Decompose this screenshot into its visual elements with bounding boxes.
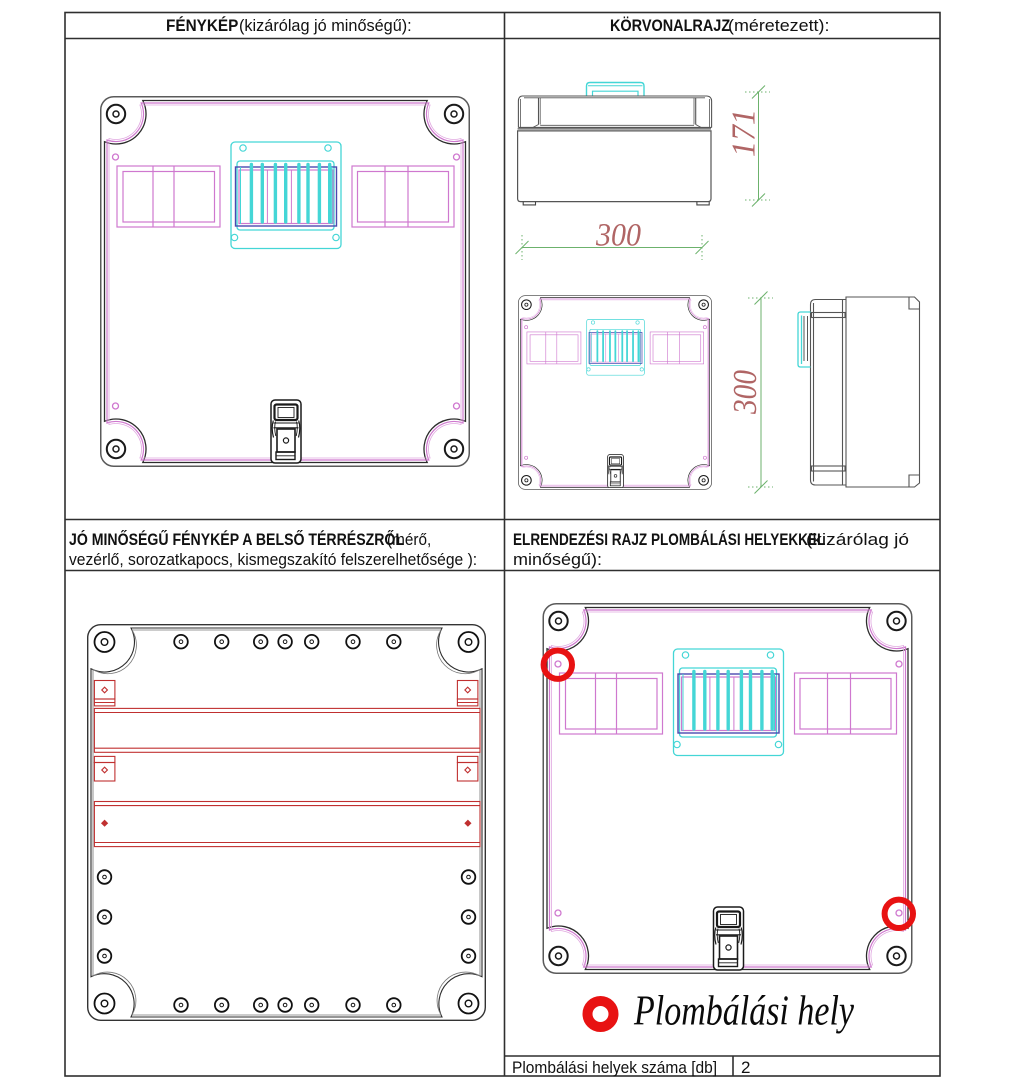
svg-text:171: 171 bbox=[726, 109, 763, 157]
svg-text:Plombálási hely: Plombálási hely bbox=[633, 989, 854, 1035]
svg-text:300: 300 bbox=[727, 370, 764, 415]
svg-text:300: 300 bbox=[595, 218, 641, 254]
